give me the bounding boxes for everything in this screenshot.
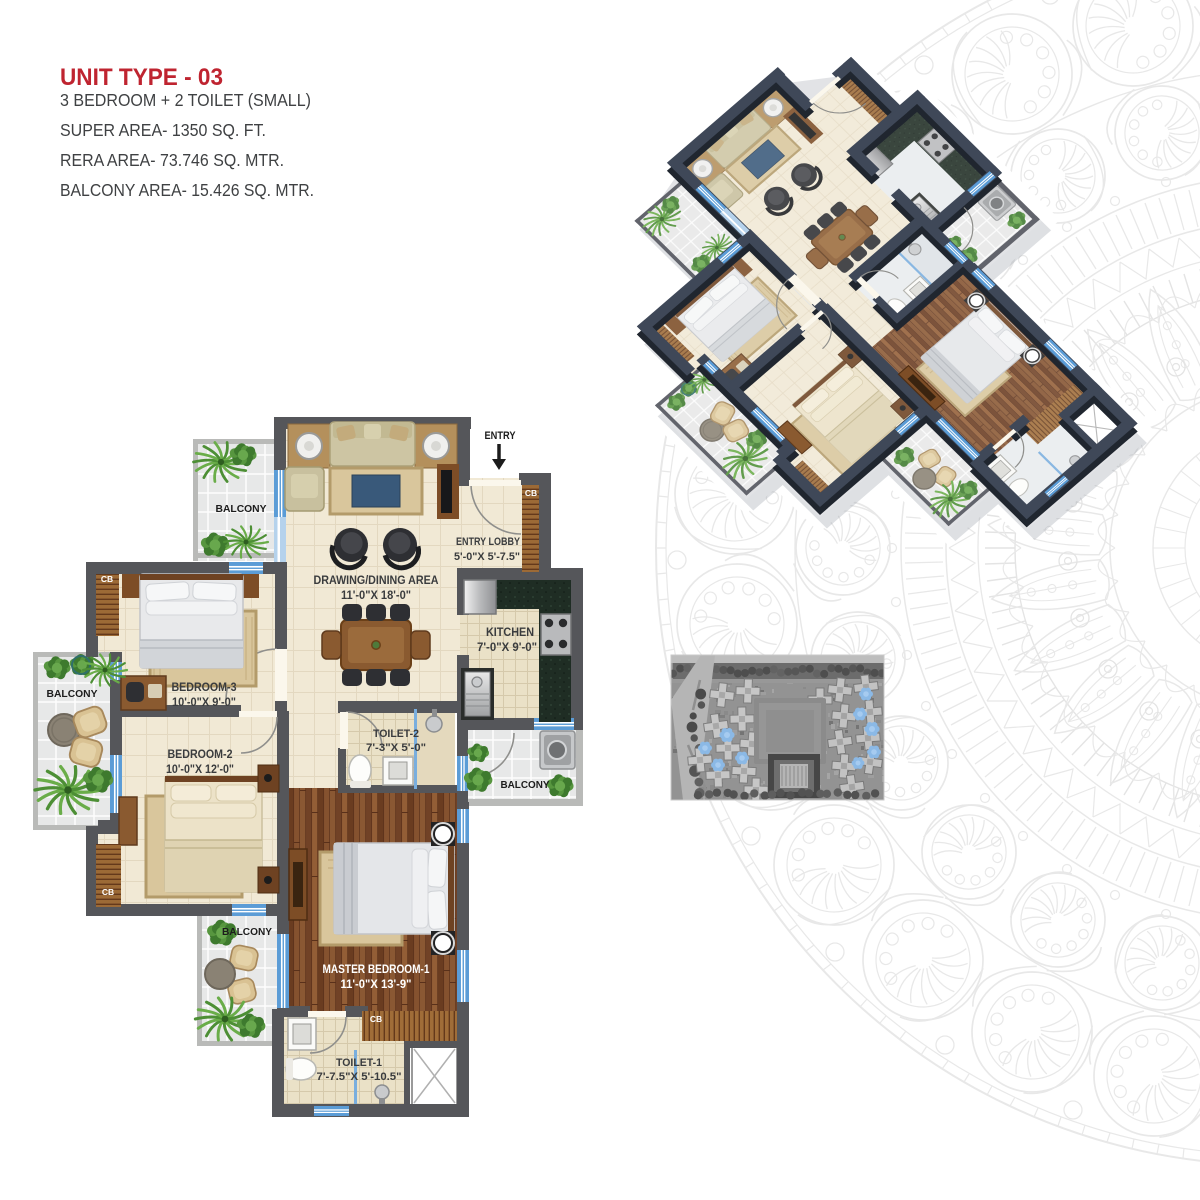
svg-text:UNIT TYPE - 03: UNIT TYPE - 03 xyxy=(60,64,223,91)
svg-text:BALCONY: BALCONY xyxy=(216,503,267,515)
svg-text:BEDROOM-2: BEDROOM-2 xyxy=(168,749,233,761)
svg-text:7'-7.5"X 5'-10.5": 7'-7.5"X 5'-10.5" xyxy=(317,1071,402,1083)
svg-text:DRAWING/DINING AREA: DRAWING/DINING AREA xyxy=(314,575,439,587)
svg-text:10'-0"X 9'-0": 10'-0"X 9'-0" xyxy=(172,697,236,709)
svg-text:SUPER AREA- 1350 SQ. FT.: SUPER AREA- 1350 SQ. FT. xyxy=(60,120,266,140)
svg-text:BALCONY: BALCONY xyxy=(47,688,98,700)
svg-text:BALCONY: BALCONY xyxy=(501,779,550,791)
svg-text:BALCONY: BALCONY xyxy=(222,926,272,938)
svg-text:CB: CB xyxy=(525,488,537,498)
svg-text:RERA AREA- 73.746 SQ. MTR.: RERA AREA- 73.746 SQ. MTR. xyxy=(60,150,284,170)
svg-text:11'-0"X 13'-9": 11'-0"X 13'-9" xyxy=(341,979,412,991)
svg-text:MASTER BEDROOM-1: MASTER BEDROOM-1 xyxy=(323,964,431,976)
svg-text:BEDROOM-3: BEDROOM-3 xyxy=(172,682,237,694)
svg-text:11'-0"X 18'-0": 11'-0"X 18'-0" xyxy=(341,590,411,602)
svg-text:10'-0"X 12'-0": 10'-0"X 12'-0" xyxy=(166,764,234,776)
svg-text:KITCHEN: KITCHEN xyxy=(486,627,534,639)
svg-text:5'-0"X 5'-7.5": 5'-0"X 5'-7.5" xyxy=(454,551,520,563)
svg-text:CB: CB xyxy=(102,887,114,897)
svg-text:TOILET-2: TOILET-2 xyxy=(373,728,419,740)
svg-text:CB: CB xyxy=(101,574,113,584)
svg-text:ENTRY LOBBY: ENTRY LOBBY xyxy=(456,536,521,548)
svg-text:3 BEDROOM + 2 TOILET (SMALL): 3 BEDROOM + 2 TOILET (SMALL) xyxy=(60,90,311,110)
svg-text:7'-0"X 9'-0": 7'-0"X 9'-0" xyxy=(477,642,537,654)
svg-text:7'-3"X 5'-0": 7'-3"X 5'-0" xyxy=(366,742,426,754)
svg-text:CB: CB xyxy=(370,1014,382,1024)
svg-text:ENTRY: ENTRY xyxy=(485,430,517,442)
svg-text:TOILET-1: TOILET-1 xyxy=(336,1057,382,1069)
svg-text:BALCONY AREA- 15.426 SQ. MTR.: BALCONY AREA- 15.426 SQ. MTR. xyxy=(60,180,314,200)
